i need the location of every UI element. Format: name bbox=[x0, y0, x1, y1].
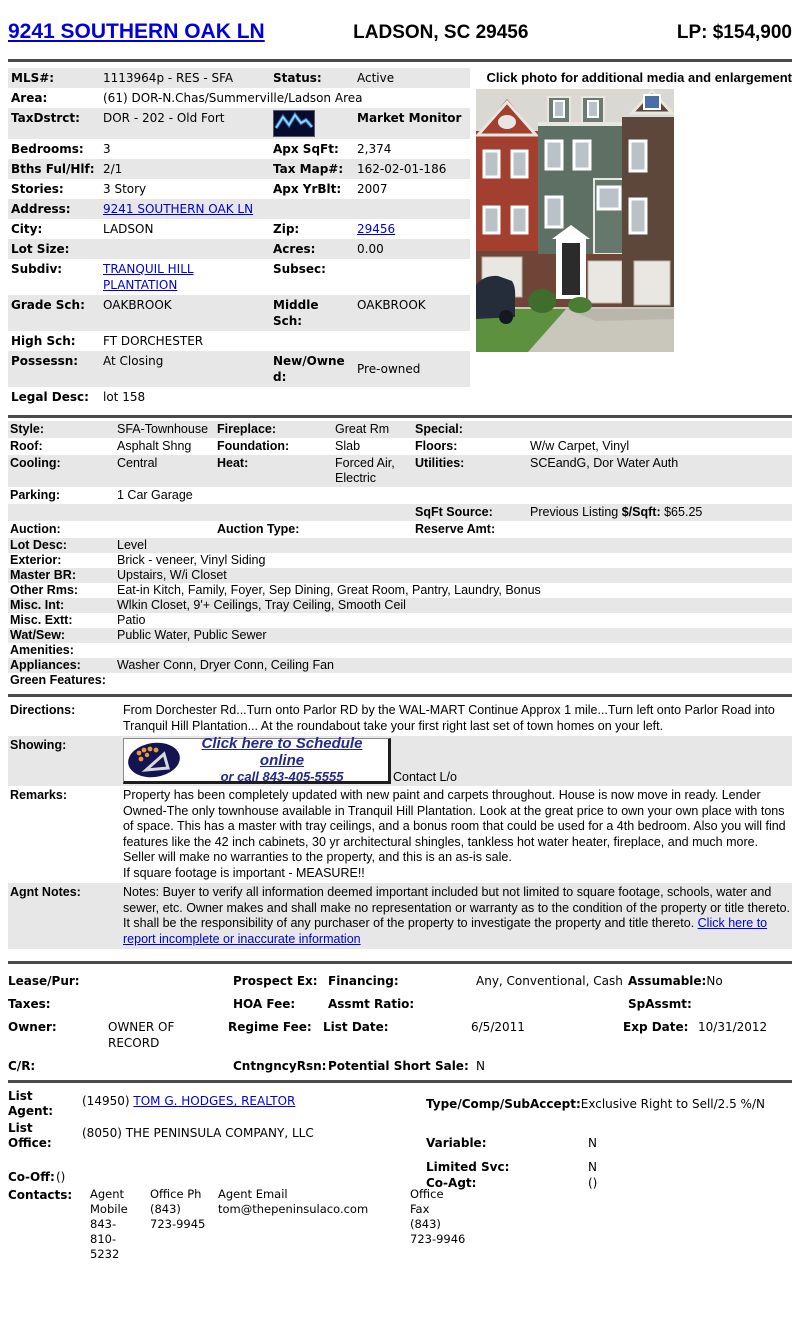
schedule-phone-text: or call 843-405-5555 bbox=[182, 769, 382, 785]
per-sqft-label: $/Sqft: bbox=[622, 505, 661, 519]
possessn-value: At Closing bbox=[100, 351, 270, 371]
new-owned-label: New/Owned: bbox=[270, 351, 354, 387]
table-row: Legal Desc: lot 158 bbox=[8, 387, 470, 407]
reserve-amt-label: Reserve Amt: bbox=[413, 521, 528, 538]
table-row: Possessn: At Closing New/Owned: Pre-owne… bbox=[8, 351, 470, 387]
legal-desc-value: lot 158 bbox=[100, 387, 470, 407]
acres-label: Acres: bbox=[270, 239, 354, 259]
misc-ext-value: Patio bbox=[115, 613, 792, 628]
foundation-value: Slab bbox=[333, 438, 413, 455]
divider bbox=[8, 1080, 792, 1083]
per-sqft-value: $65.25 bbox=[664, 505, 702, 519]
floors-value: W/w Carpet, Vinyl bbox=[528, 438, 792, 455]
assmt-ratio-label: Assmt Ratio: bbox=[328, 995, 476, 1013]
table-row: Roof: Asphalt Shng Foundation: Slab Floo… bbox=[8, 438, 792, 455]
agent-email-cell: Agent Email tom@thepeninsulaco.com bbox=[218, 1187, 400, 1262]
bedrooms-value: 3 bbox=[100, 139, 270, 159]
possessn-label: Possessn: bbox=[8, 351, 100, 371]
financial-section: Lease/Pur: Prospect Ex: Financing: Any, … bbox=[8, 972, 792, 1075]
agent-mobile-cell: Agent Mobile 843-810-5232 bbox=[90, 1187, 140, 1262]
roof-label: Roof: bbox=[8, 438, 115, 455]
remarks-row: Remarks: Property has been completely up… bbox=[8, 786, 792, 883]
table-row: Master BR: Upstairs, W/i Closet bbox=[8, 568, 792, 583]
green-features-label: Green Features: bbox=[8, 673, 138, 688]
table-row: MLS#: 1113964p - RES - SFA Status: Activ… bbox=[8, 68, 470, 88]
table-row: Wat/Sew: Public Water, Public Sewer bbox=[8, 628, 792, 643]
special-label: Special: bbox=[413, 421, 528, 438]
table-row: TaxDstrct: DOR - 202 - Old Fort Market M… bbox=[8, 108, 470, 139]
agnt-notes-label: Agnt Notes: bbox=[8, 884, 123, 901]
features-section: Style: SFA-Townhouse Fireplace: Great Rm… bbox=[8, 421, 792, 688]
roof-value: Asphalt Shng bbox=[115, 438, 215, 455]
taxes-label: Taxes: bbox=[8, 995, 108, 1013]
table-row: Style: SFA-Townhouse Fireplace: Great Rm… bbox=[8, 421, 792, 438]
table-row: High Sch: FT DORCHESTER bbox=[8, 331, 470, 351]
header: 9241 SOUTHERN OAK LN LADSON, SC 29456 LP… bbox=[8, 0, 792, 56]
cooling-value: Central bbox=[115, 455, 215, 472]
high-sch-value: FT DORCHESTER bbox=[100, 331, 470, 351]
prospect-ex-label: Prospect Ex: bbox=[233, 972, 328, 990]
table-row: Misc. Int: Wlkin Closet, 9'+ Ceilings, T… bbox=[8, 598, 792, 613]
master-br-value: Upstairs, W/i Closet bbox=[115, 568, 792, 583]
table-row: Bths Ful/Hlf: 2/1 Tax Map#: 162-02-01-18… bbox=[8, 159, 470, 179]
table-row: Subdiv: TRANQUIL HILL PLANTATION Subsec: bbox=[8, 259, 470, 295]
property-photo[interactable] bbox=[476, 89, 674, 352]
middle-sch-label: Middle Sch: bbox=[270, 295, 354, 331]
remarks-measure-note: If square footage is important - MEASURE… bbox=[123, 866, 790, 882]
utilities-value: SCEandG, Dor Water Auth bbox=[528, 455, 792, 472]
agnt-notes-text: Notes: Buyer to verify all information d… bbox=[123, 884, 792, 948]
table-row: Parking: 1 Car Garage bbox=[8, 487, 792, 504]
co-off-label: Co-Off: bbox=[8, 1169, 56, 1185]
lease-pur-label: Lease/Pur: bbox=[8, 972, 108, 990]
parking-value: 1 Car Garage bbox=[115, 487, 295, 504]
mls-listing-sheet: 9241 SOUTHERN OAK LN LADSON, SC 29456 LP… bbox=[0, 0, 800, 1320]
apx-yrblt-value: 2007 bbox=[354, 179, 470, 199]
limited-svc-row: Limited Svc: N bbox=[426, 1159, 792, 1175]
table-row: Appliances: Washer Conn, Dryer Conn, Cei… bbox=[8, 658, 792, 673]
co-off-value: () bbox=[56, 1169, 426, 1185]
short-sale-value: N bbox=[476, 1057, 628, 1075]
apx-sqft-label: Apx SqFt: bbox=[270, 139, 354, 159]
table-row: Stories: 3 Story Apx YrBlt: 2007 bbox=[8, 179, 470, 199]
market-monitor-label[interactable]: Market Monitor bbox=[354, 108, 470, 128]
table-row: Taxes: HOA Fee: Assmt Ratio: SpAssmt: bbox=[8, 995, 792, 1013]
variable-value: N bbox=[588, 1135, 792, 1151]
owner-value: OWNER OF RECORD bbox=[108, 1018, 228, 1052]
fireplace-value: Great Rm bbox=[333, 421, 413, 438]
subdiv-link[interactable]: TRANQUIL HILL PLANTATION bbox=[103, 262, 194, 292]
subsec-value bbox=[354, 259, 470, 263]
foundation-label: Foundation: bbox=[215, 438, 333, 455]
assumable-pair: Assumable:No bbox=[628, 972, 792, 990]
list-office-value: (8050) THE PENINSULA COMPANY, LLC bbox=[58, 1121, 426, 1141]
taxdstrct-label: TaxDstrct: bbox=[8, 108, 100, 128]
agent-email-value: tom@thepeninsulaco.com bbox=[218, 1202, 400, 1217]
type-comp-label: Type/Comp/SubAccept: bbox=[426, 1097, 581, 1111]
table-row: Green Features: bbox=[8, 673, 792, 688]
variable-row: Variable: N bbox=[426, 1135, 792, 1151]
mls-label: MLS#: bbox=[8, 68, 100, 88]
table-row: Lot Size: Acres: 0.00 bbox=[8, 239, 470, 259]
list-office-label: List Office: bbox=[8, 1121, 58, 1151]
cntngncy-label: CntngncyRsn: bbox=[233, 1057, 328, 1075]
other-rms-value: Eat-in Kitch, Family, Foyer, Sep Dining,… bbox=[115, 583, 792, 598]
middle-sch-value: OAKBROOK bbox=[354, 295, 470, 315]
high-sch-label: High Sch: bbox=[8, 331, 100, 351]
status-value: Active bbox=[354, 68, 470, 88]
type-comp-pair: Type/Comp/SubAccept:Exclusive Right to S… bbox=[426, 1097, 765, 1111]
divider bbox=[8, 415, 792, 418]
list-agent-label: List Agent: bbox=[8, 1089, 58, 1119]
remarks-label: Remarks: bbox=[8, 787, 123, 804]
table-row: Area: (61) DOR-N.Chas/Summerville/Ladson… bbox=[8, 88, 470, 108]
list-date-value: 6/5/2011 bbox=[471, 1018, 623, 1036]
exterior-label: Exterior: bbox=[8, 553, 115, 568]
appliances-label: Appliances: bbox=[8, 658, 115, 673]
subsec-label: Subsec: bbox=[270, 259, 354, 279]
financing-value: Any, Conventional, Cash bbox=[476, 972, 628, 990]
city-label: City: bbox=[8, 219, 100, 239]
master-br-label: Master BR: bbox=[8, 568, 115, 583]
header-location: LADSON, SC 29456 bbox=[353, 22, 528, 44]
tax-map-value: 162-02-01-186 bbox=[354, 159, 450, 179]
fireplace-label: Fireplace: bbox=[215, 421, 333, 438]
misc-int-label: Misc. Int: bbox=[8, 598, 115, 613]
mls-value: 1113964p - RES - SFA bbox=[100, 68, 270, 88]
table-row: City: LADSON Zip: 29456 bbox=[8, 219, 470, 239]
limited-svc-label: Limited Svc: bbox=[426, 1159, 588, 1175]
floors-label: Floors: bbox=[413, 438, 528, 455]
wat-sew-value: Public Water, Public Sewer bbox=[115, 628, 792, 643]
type-comp-row: Type/Comp/SubAccept:Exclusive Right to S… bbox=[426, 1097, 792, 1111]
divider bbox=[8, 59, 792, 62]
co-agt-value: () bbox=[588, 1175, 792, 1191]
schedule-showing-button[interactable]: Click here to Schedule online or call 84… bbox=[123, 738, 391, 784]
agent-mobile-value: 843-810-5232 bbox=[90, 1217, 140, 1262]
co-off-row: Co-Off: () bbox=[8, 1169, 426, 1185]
lot-desc-value: Level bbox=[115, 538, 792, 553]
cr-label: C/R: bbox=[8, 1057, 108, 1075]
type-comp-value: Exclusive Right to Sell/2.5 %/N bbox=[581, 1097, 765, 1111]
utilities-label: Utilities: bbox=[413, 455, 528, 472]
table-row: Lease/Pur: Prospect Ex: Financing: Any, … bbox=[8, 972, 792, 990]
wat-sew-label: Wat/Sew: bbox=[8, 628, 115, 643]
spassmt-label: SpAssmt: bbox=[628, 995, 792, 1013]
list-date-label: List Date: bbox=[323, 1018, 471, 1036]
auction-type-label: Auction Type: bbox=[215, 521, 333, 538]
table-row: Grade Sch: OAKBROOK Middle Sch: OAKBROOK bbox=[8, 295, 470, 331]
misc-int-value: Wlkin Closet, 9'+ Ceilings, Tray Ceiling… bbox=[115, 598, 792, 613]
heat-label: Heat: bbox=[215, 455, 333, 472]
office-ph-cell: Office Ph (843) 723-9945 bbox=[150, 1187, 206, 1262]
showing-badge-text: Click here to Schedule online or call 84… bbox=[182, 735, 382, 785]
style-value: SFA-Townhouse bbox=[115, 421, 215, 438]
auction-label: Auction: bbox=[8, 521, 115, 538]
special-value bbox=[528, 421, 792, 423]
hoa-fee-label: HOA Fee: bbox=[233, 995, 328, 1013]
grade-sch-label: Grade Sch: bbox=[8, 295, 100, 315]
style-label: Style: bbox=[8, 421, 115, 438]
contacts-label: Contacts: bbox=[8, 1187, 90, 1203]
sqft-source-value: Previous Listing $/Sqft: $65.25 bbox=[528, 504, 792, 521]
agent-left-column: List Agent: (14950) TOM G. HODGES, REALT… bbox=[8, 1089, 426, 1264]
list-office-row: List Office: (8050) THE PENINSULA COMPAN… bbox=[8, 1121, 426, 1151]
limited-svc-value: N bbox=[588, 1159, 792, 1175]
status-label: Status: bbox=[270, 68, 354, 88]
market-monitor-icon[interactable] bbox=[270, 108, 354, 139]
table-row: Exterior: Brick - veneer, Vinyl Siding bbox=[8, 553, 792, 568]
divider bbox=[8, 961, 792, 964]
agent-right-column: Type/Comp/SubAccept:Exclusive Right to S… bbox=[426, 1089, 792, 1264]
taxdstrct-value: DOR - 202 - Old Fort bbox=[100, 108, 270, 128]
acres-value: 0.00 bbox=[354, 239, 470, 259]
address-label: Address: bbox=[8, 199, 100, 219]
contacts-row: Contacts: Agent Mobile 843-810-5232 Offi… bbox=[8, 1187, 426, 1262]
parking-label: Parking: bbox=[8, 487, 115, 504]
short-sale-label: Potential Short Sale: bbox=[328, 1057, 476, 1075]
subdiv-label: Subdiv: bbox=[8, 259, 100, 279]
lot-size-value bbox=[100, 239, 270, 243]
showing-label: Showing: bbox=[8, 737, 123, 754]
table-row: Amenities: bbox=[8, 643, 792, 658]
table-row: Bedrooms: 3 Apx SqFt: 2,374 bbox=[8, 139, 470, 159]
table-row: SqFt Source: Previous Listing $/Sqft: $6… bbox=[8, 504, 792, 521]
list-agent-link[interactable]: TOM G. HODGES, REALTOR bbox=[133, 1094, 295, 1108]
legal-desc-label: Legal Desc: bbox=[8, 387, 100, 407]
photo-column: Click photo for additional media and enl… bbox=[470, 68, 792, 407]
cooling-label: Cooling: bbox=[8, 455, 115, 472]
co-agt-row: Co-Agt: () bbox=[426, 1175, 792, 1191]
table-row: Auction: Auction Type: Reserve Amt: bbox=[8, 521, 792, 538]
assumable-label: Assumable: bbox=[628, 974, 706, 988]
other-rms-label: Other Rms: bbox=[8, 583, 115, 598]
apx-yrblt-label: Apx YrBlt: bbox=[270, 179, 354, 199]
table-row: Misc. Extt: Patio bbox=[8, 613, 792, 628]
photo-caption: Click photo for additional media and enl… bbox=[476, 68, 792, 85]
lot-size-label: Lot Size: bbox=[8, 239, 100, 259]
table-row: Owner: OWNER OF RECORD Regime Fee: List … bbox=[8, 1018, 792, 1052]
stories-value: 3 Story bbox=[100, 179, 270, 199]
exterior-value: Brick - veneer, Vinyl Siding bbox=[115, 553, 792, 568]
remarks-text: Property has been completely updated wit… bbox=[123, 787, 792, 882]
owner-label: Owner: bbox=[8, 1018, 108, 1036]
zip-label: Zip: bbox=[270, 219, 354, 239]
sqft-source-label: SqFt Source: bbox=[413, 504, 528, 521]
table-row: Other Rms: Eat-in Kitch, Family, Foyer, … bbox=[8, 583, 792, 598]
showing-row: Showing: bbox=[8, 736, 792, 786]
grade-sch-value: OAKBROOK bbox=[100, 295, 270, 315]
amenities-label: Amenities: bbox=[8, 643, 115, 658]
agent-notes-row: Agnt Notes: Notes: Buyer to verify all i… bbox=[8, 883, 792, 949]
directions-text: From Dorchester Rd...Turn onto Parlor RD… bbox=[123, 702, 792, 735]
table-row: Address: 9241 SOUTHERN OAK LN bbox=[8, 199, 470, 219]
variable-label: Variable: bbox=[426, 1135, 588, 1151]
heat-value: Forced Air, Electric bbox=[333, 455, 413, 487]
address-link[interactable]: 9241 SOUTHERN OAK LN bbox=[103, 202, 253, 216]
lot-desc-label: Lot Desc: bbox=[8, 538, 115, 553]
narrative-section: Directions: From Dorchester Rd...Turn on… bbox=[8, 701, 792, 949]
appliances-value: Washer Conn, Dryer Conn, Ceiling Fan bbox=[115, 658, 792, 673]
office-ph-value: (843) 723-9945 bbox=[150, 1202, 206, 1232]
assumable-value: No bbox=[706, 974, 722, 988]
agent-section: List Agent: (14950) TOM G. HODGES, REALT… bbox=[8, 1089, 792, 1264]
financing-label: Financing: bbox=[328, 972, 476, 990]
bths-value: 2/1 bbox=[100, 159, 270, 179]
schedule-online-link[interactable]: Click here to Schedule online bbox=[182, 735, 382, 769]
exp-date-label: Exp Date: bbox=[623, 1018, 698, 1036]
co-agt-label: Co-Agt: bbox=[426, 1175, 588, 1191]
apx-sqft-value: 2,374 bbox=[354, 139, 470, 159]
directions-label: Directions: bbox=[8, 702, 123, 719]
regime-fee-label: Regime Fee: bbox=[228, 1018, 323, 1036]
showing-service-logo-icon bbox=[126, 740, 182, 780]
area-value: (61) DOR-N.Chas/Summerville/Ladson Area bbox=[100, 88, 470, 108]
directions-row: Directions: From Dorchester Rd...Turn on… bbox=[8, 701, 792, 736]
table-row: Lot Desc: Level bbox=[8, 538, 792, 553]
header-list-price: LP: $154,900 bbox=[677, 22, 792, 44]
agent-mobile-header: Agent Mobile bbox=[90, 1187, 140, 1217]
contact-lo-text: Contact L/o bbox=[393, 770, 457, 784]
agent-email-header: Agent Email bbox=[218, 1187, 400, 1202]
property-info-table: MLS#: 1113964p - RES - SFA Status: Activ… bbox=[8, 68, 470, 407]
zip-link[interactable]: 29456 bbox=[357, 222, 395, 236]
misc-ext-label: Misc. Extt: bbox=[8, 613, 115, 628]
list-agent-value: (14950) TOM G. HODGES, REALTOR bbox=[58, 1089, 426, 1109]
exp-date-value: 10/31/2012 bbox=[698, 1018, 792, 1036]
contacts-table: Agent Mobile 843-810-5232 Office Ph (843… bbox=[90, 1187, 466, 1262]
new-owned-value: Pre-owned bbox=[354, 351, 470, 379]
bths-label: Bths Ful/Hlf: bbox=[8, 159, 100, 179]
tax-map-label: Tax Map#: bbox=[270, 159, 354, 179]
table-row: C/R: CntngncyRsn: Potential Short Sale: … bbox=[8, 1057, 792, 1075]
table-row: Cooling: Central Heat: Forced Air, Elect… bbox=[8, 455, 792, 487]
list-agent-row: List Agent: (14950) TOM G. HODGES, REALT… bbox=[8, 1089, 426, 1119]
stories-label: Stories: bbox=[8, 179, 100, 199]
area-label: Area: bbox=[8, 88, 100, 108]
office-ph-header: Office Ph bbox=[150, 1187, 206, 1202]
top-section: MLS#: 1113964p - RES - SFA Status: Activ… bbox=[8, 68, 792, 407]
bedrooms-label: Bedrooms: bbox=[8, 139, 100, 159]
header-address-link[interactable]: 9241 SOUTHERN OAK LN bbox=[8, 20, 265, 44]
city-value: LADSON bbox=[100, 219, 270, 239]
divider bbox=[8, 694, 792, 697]
